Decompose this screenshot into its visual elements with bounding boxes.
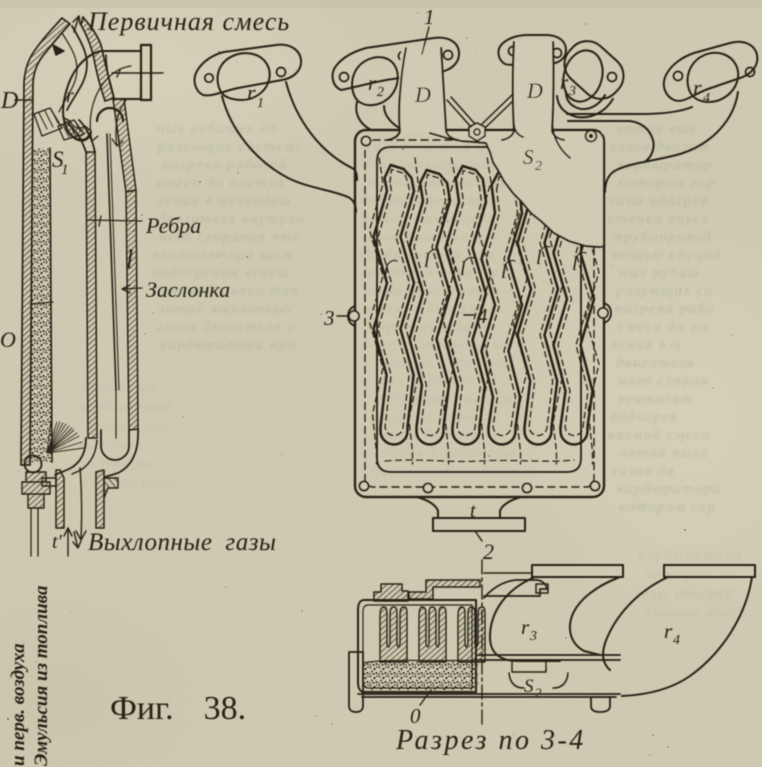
svg-text:карбюратора: карбюратора xyxy=(617,481,722,497)
svg-text:ных рубаш: ных рубаш xyxy=(619,265,701,281)
svg-text:D: D xyxy=(526,78,543,103)
svg-text:нагрева рабо: нагрева рабо xyxy=(615,301,715,317)
svg-text:1: 1 xyxy=(61,162,69,178)
svg-text:2: 2 xyxy=(535,685,542,700)
svg-text:O: O xyxy=(0,327,16,352)
svg-text:двигателя: двигателя xyxy=(616,355,695,371)
svg-text:t: t xyxy=(470,500,476,522)
svg-text:котором гор: котором гор xyxy=(619,499,716,515)
svg-text:D: D xyxy=(414,82,431,107)
svg-text:D: D xyxy=(0,88,18,114)
svg-text:Разрез по 3-4: Разрез по 3-4 xyxy=(395,725,586,756)
svg-text:вентилятора щим: вентилятора щим xyxy=(153,247,293,263)
svg-text:него сгоран: него сгоран xyxy=(619,373,709,389)
svg-text:1: 1 xyxy=(257,96,264,111)
svg-text:карбюратора: карбюратора xyxy=(638,548,743,564)
svg-text:2: 2 xyxy=(483,539,494,564)
svg-text:смеси до поступ: смеси до поступ xyxy=(157,175,285,191)
svg-text:r: r xyxy=(521,615,530,639)
svg-text:1: 1 xyxy=(424,5,435,29)
svg-text:газов двигателя и: газов двигателя и xyxy=(157,319,296,335)
svg-text:трубопровод: трубопровод xyxy=(612,229,712,245)
svg-text:мощью спе: мощью спе xyxy=(88,419,168,434)
svg-text:ваемой смеси: ваемой смеси xyxy=(608,427,711,443)
svg-text:нагрева рабо: нагрева рабо xyxy=(81,476,176,491)
svg-text:Эмульсия из топлива: Эмульсия из топлива xyxy=(31,585,52,766)
svg-text:двигателя внутрен: двигателя внутрен xyxy=(372,463,520,479)
svg-text:Ребра: Ребра xyxy=(145,213,201,238)
svg-text:ления в ц: ления в ц xyxy=(610,337,682,353)
svg-text:лотой выхл: лотой выхл xyxy=(619,445,709,461)
svg-text:лотой вых: лотой вых xyxy=(616,121,698,137)
svg-text:2: 2 xyxy=(377,85,384,100)
svg-text:S: S xyxy=(523,145,534,169)
svg-text:r: r xyxy=(693,75,702,100)
svg-text:стенки впуск: стенки впуск xyxy=(608,211,710,227)
svg-text:3: 3 xyxy=(323,306,335,330)
svg-text:l: l xyxy=(126,245,133,274)
svg-text:лотой выхлопных: лотой выхлопных xyxy=(157,301,294,317)
svg-text:ваемой смеси теп: ваемой смеси теп xyxy=(360,193,498,209)
svg-text:3: 3 xyxy=(568,84,576,99)
svg-text:r: r xyxy=(560,70,569,94)
svg-text:ления в цилиндры: ления в цилиндры xyxy=(156,193,292,209)
svg-text:вентилят: вентилят xyxy=(618,391,693,407)
svg-text:2: 2 xyxy=(535,159,542,174)
svg-text:Первичная смесь: Первичная смесь xyxy=(87,7,290,36)
svg-text:мощью специа: мощью специа xyxy=(610,247,722,263)
svg-text:смеси до по: смеси до по xyxy=(618,319,709,335)
svg-text:r: r xyxy=(368,71,377,95)
svg-text:газов дв: газов дв xyxy=(612,463,675,479)
svg-text:разующих систему: разующих систему xyxy=(157,139,303,155)
svg-text:котором гор: котором гор xyxy=(618,175,715,191)
svg-text:4: 4 xyxy=(673,633,680,648)
svg-text:t′: t′ xyxy=(52,531,63,553)
svg-text:3: 3 xyxy=(529,629,537,644)
svg-text:стенки впус: стенки впус xyxy=(646,605,740,621)
svg-text:r: r xyxy=(664,619,673,643)
svg-text:карбюратора при: карбюратора при xyxy=(160,337,297,353)
svg-text:ных рубашек об: ных рубашек об xyxy=(157,121,279,137)
svg-text:Выхлопные газы: Выхлопные газы xyxy=(88,529,276,556)
svg-text:газы обогрев: газы обогрев xyxy=(609,193,709,209)
svg-text:4: 4 xyxy=(477,304,488,328)
svg-text:r: r xyxy=(66,85,74,107)
svg-text:r: r xyxy=(247,80,256,105)
svg-text:разующих си: разующих си xyxy=(615,283,714,299)
svg-text:ных руба: ных руба xyxy=(79,438,144,453)
svg-text:S: S xyxy=(524,676,534,697)
svg-text:Заслонка: Заслонка xyxy=(146,277,230,302)
svg-text:подогрев: подогрев xyxy=(610,409,678,425)
svg-text:4: 4 xyxy=(703,91,710,106)
svg-text:и перв. воздуха: и перв. воздуха xyxy=(8,643,29,766)
